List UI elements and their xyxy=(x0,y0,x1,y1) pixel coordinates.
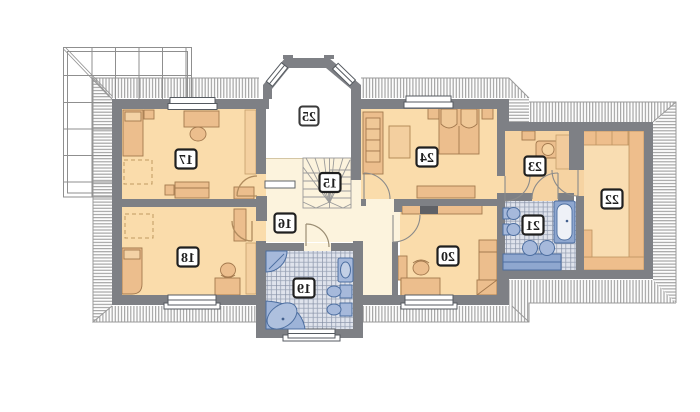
svg-text:24: 24 xyxy=(420,151,434,166)
svg-text:22: 22 xyxy=(605,193,619,208)
svg-text:23: 23 xyxy=(528,160,542,175)
svg-text:25: 25 xyxy=(302,110,316,125)
svg-text:21: 21 xyxy=(526,219,540,234)
svg-text:19: 19 xyxy=(297,282,311,297)
svg-text:18: 18 xyxy=(181,251,195,266)
svg-text:15: 15 xyxy=(323,177,337,192)
svg-text:16: 16 xyxy=(278,217,292,232)
svg-text:20: 20 xyxy=(441,250,455,265)
svg-text:17: 17 xyxy=(179,153,193,168)
